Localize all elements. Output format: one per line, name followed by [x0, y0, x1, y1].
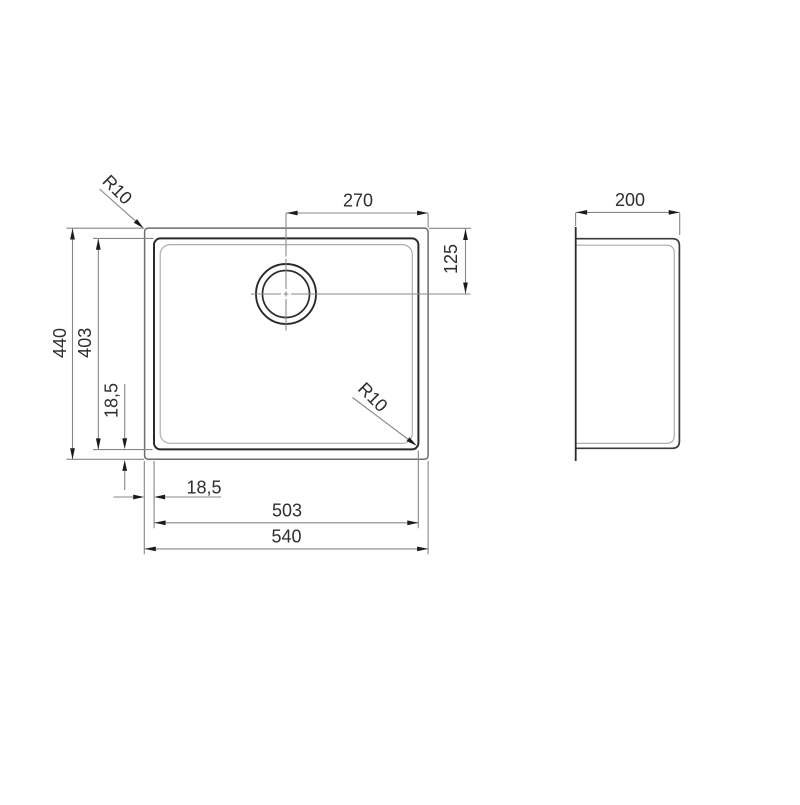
- svg-text:403: 403: [75, 328, 95, 358]
- svg-text:540: 540: [271, 526, 301, 546]
- svg-text:270: 270: [343, 190, 373, 210]
- svg-text:18,5: 18,5: [186, 477, 221, 497]
- svg-text:125: 125: [441, 244, 461, 274]
- svg-text:200: 200: [615, 190, 645, 210]
- svg-text:18,5: 18,5: [102, 383, 122, 418]
- svg-text:503: 503: [272, 501, 302, 521]
- svg-text:440: 440: [50, 328, 70, 358]
